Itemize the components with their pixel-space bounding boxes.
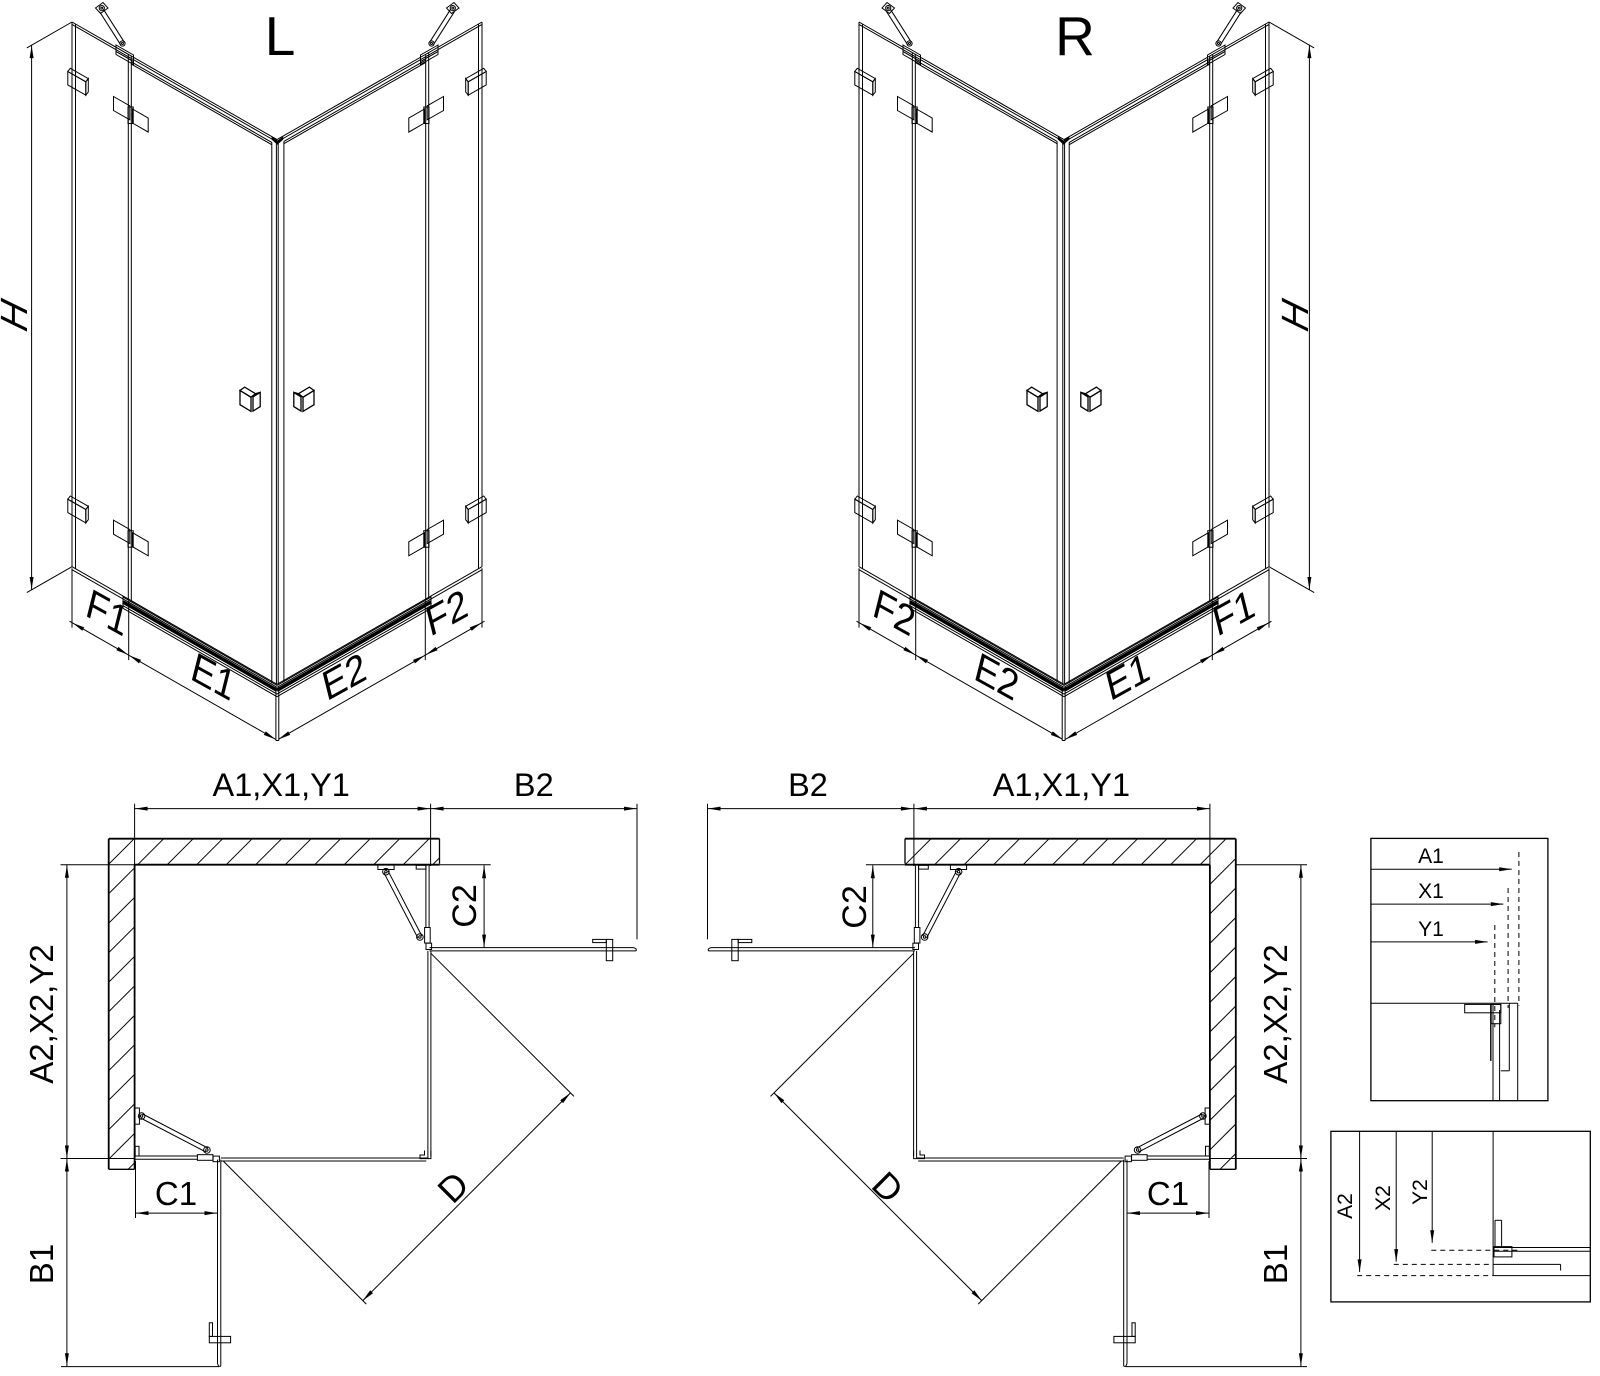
svg-text:C1: C1 [155,1175,197,1212]
svg-text:X2: X2 [1372,1185,1395,1211]
svg-text:A2,X2,Y2: A2,X2,Y2 [1257,944,1294,1083]
svg-text:A2: A2 [1334,1193,1357,1219]
svg-text:Y2: Y2 [1409,1179,1432,1205]
svg-text:C2: C2 [446,884,484,927]
svg-text:A2,X2,Y2: A2,X2,Y2 [23,944,60,1083]
svg-text:A1: A1 [1418,845,1444,868]
svg-text:R: R [1055,5,1095,67]
svg-text:B1: B1 [1257,1244,1294,1284]
svg-text:X1: X1 [1418,880,1444,903]
svg-text:A1,X1,Y1: A1,X1,Y1 [993,767,1130,803]
svg-text:L: L [265,5,296,67]
svg-text:C2: C2 [836,885,874,928]
svg-text:C1: C1 [1147,1175,1189,1212]
svg-text:Y1: Y1 [1418,918,1444,941]
svg-text:B2: B2 [514,767,554,803]
svg-text:B2: B2 [788,767,828,803]
svg-text:B1: B1 [23,1244,60,1284]
svg-text:A1,X1,Y1: A1,X1,Y1 [213,767,350,803]
